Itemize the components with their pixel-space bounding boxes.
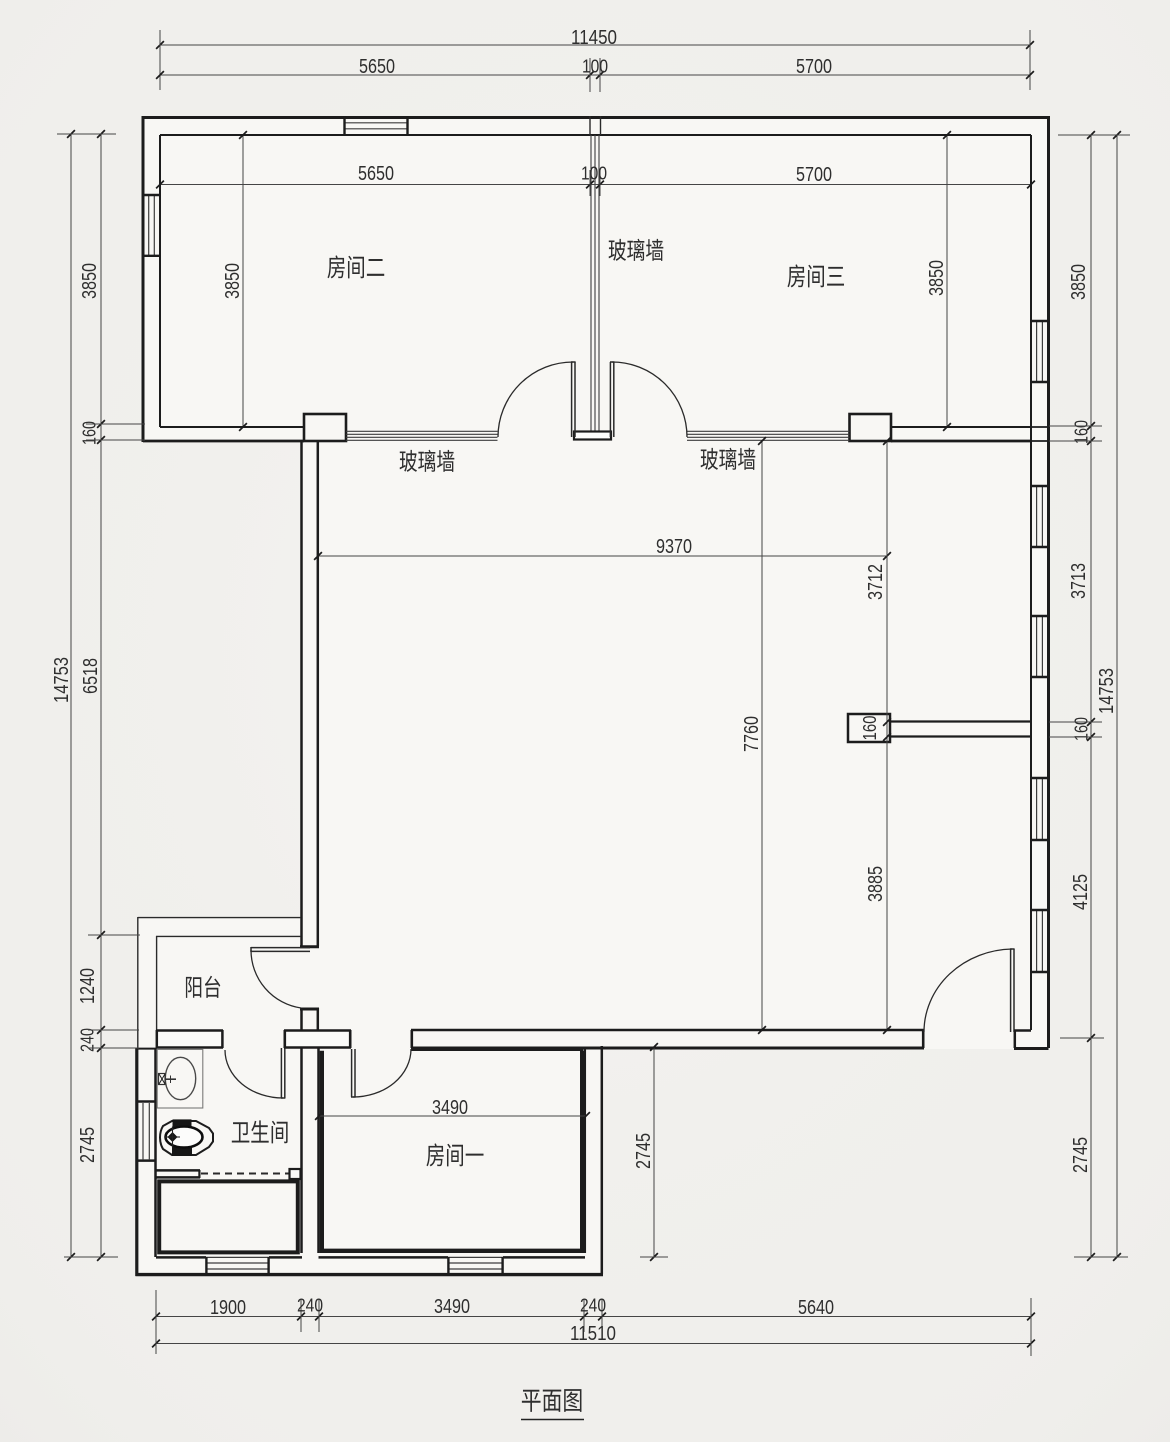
svg-text:14753: 14753	[51, 657, 73, 703]
svg-text:6518: 6518	[80, 658, 102, 694]
svg-text:240: 240	[580, 1295, 606, 1315]
svg-text:3850: 3850	[79, 263, 101, 299]
svg-text:1900: 1900	[210, 1297, 246, 1319]
svg-text:2745: 2745	[1070, 1137, 1092, 1173]
svg-text:160: 160	[79, 421, 99, 445]
svg-text:160: 160	[1071, 420, 1091, 444]
svg-text:11450: 11450	[571, 27, 617, 49]
svg-text:3713: 3713	[1068, 563, 1090, 599]
svg-text:4125: 4125	[1070, 874, 1092, 910]
svg-text:14753: 14753	[1096, 668, 1118, 714]
svg-text:5700: 5700	[796, 56, 832, 78]
svg-text:100: 100	[581, 163, 607, 183]
svg-text:2745: 2745	[77, 1127, 99, 1163]
svg-text:1240: 1240	[77, 968, 99, 1004]
svg-text:3490: 3490	[432, 1097, 468, 1119]
svg-text:3885: 3885	[865, 866, 887, 902]
svg-text:3850: 3850	[1068, 264, 1090, 300]
svg-text:5650: 5650	[359, 56, 395, 78]
svg-text:3850: 3850	[926, 260, 948, 296]
svg-text:5700: 5700	[796, 164, 832, 186]
svg-text:7760: 7760	[741, 716, 763, 752]
svg-text:160: 160	[860, 716, 880, 741]
svg-text:240: 240	[297, 1295, 323, 1315]
svg-text:5640: 5640	[798, 1297, 834, 1319]
svg-text:9370: 9370	[656, 536, 692, 558]
svg-text:3850: 3850	[222, 263, 244, 299]
svg-text:100: 100	[582, 56, 608, 76]
svg-text:5650: 5650	[358, 163, 394, 185]
svg-text:2745: 2745	[633, 1133, 655, 1169]
svg-text:3712: 3712	[865, 564, 887, 600]
svg-text:3490: 3490	[434, 1296, 470, 1318]
svg-text:11510: 11510	[570, 1323, 616, 1345]
